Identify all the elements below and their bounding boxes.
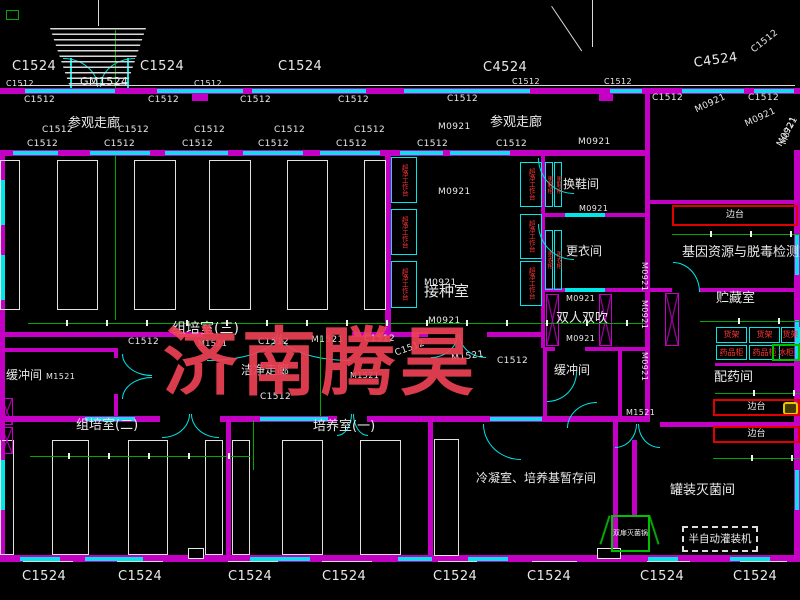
wall-segment — [0, 348, 118, 352]
window-segment — [795, 470, 799, 510]
door-swing-arc — [638, 424, 660, 448]
equipment-label: 更衣柜 — [555, 251, 561, 269]
door-window-code: C1512 — [750, 29, 780, 55]
equipment-red-bench: 边台 — [713, 426, 800, 443]
window-segment — [165, 151, 228, 155]
door-window-code: C1524 — [118, 570, 162, 583]
door-window-code: C1524 — [12, 60, 56, 73]
equipment-label: 更鞋柜 — [555, 176, 561, 194]
door-window-code: M0921 — [424, 279, 457, 288]
room-label: 贮藏室 — [716, 292, 755, 305]
door-swing-arc — [162, 414, 190, 438]
window-segment — [610, 89, 642, 93]
door-window-code: C1512 — [258, 140, 289, 149]
equipment-label: 冰柜 — [778, 349, 794, 357]
door-swing-arc — [567, 402, 597, 428]
construction-line — [228, 561, 278, 562]
window-segment — [252, 89, 366, 93]
wall-segment — [715, 363, 800, 366]
room-label: 双人双吹 — [556, 312, 608, 325]
door-window-code: C1512 — [496, 140, 527, 149]
culture-rack — [360, 440, 401, 555]
door-window-code: C1512 — [497, 357, 528, 366]
equipment-wardrobe: 更衣柜 — [554, 230, 562, 290]
window-segment — [565, 288, 605, 292]
equipment-label: 超净工作台 — [528, 220, 535, 253]
door-window-code: C1524 — [433, 570, 477, 583]
dimension-line-vertical — [253, 420, 254, 470]
door-window-code: M0921 — [566, 335, 595, 343]
dimension-line — [700, 318, 800, 324]
construction-line — [592, 0, 593, 47]
wall-segment — [487, 332, 543, 337]
equipment-label: 超净工作台 — [528, 267, 535, 300]
wall-segment — [226, 422, 231, 555]
culture-rack — [364, 160, 386, 310]
equipment-clean-bench: 超净工作台 — [391, 209, 417, 255]
culture-rack — [0, 160, 20, 310]
room-label: 缓冲间 — [6, 369, 42, 381]
wall-segment — [650, 288, 672, 292]
door-window-code: C1512 — [194, 126, 225, 135]
air-shower-hatch — [1, 398, 13, 425]
door-window-code: C1512 — [148, 96, 179, 105]
equipment-wardrobe: 更衣柜 — [545, 230, 553, 290]
air-shower-hatch — [1, 427, 13, 454]
door-window-code: C1524 — [527, 570, 571, 583]
air-shower-hatch — [665, 293, 679, 346]
dimension-line — [30, 453, 250, 459]
equipment-filler: 半自动灌装机 — [682, 526, 758, 552]
window-segment — [404, 89, 530, 93]
equipment-label: 货架 — [783, 331, 799, 339]
equipment-label: 超净工作台 — [401, 164, 408, 197]
construction-line — [438, 561, 477, 562]
door-window-code: C1512 — [417, 140, 448, 149]
corner-marker — [6, 10, 19, 20]
equipment-label: 边台 — [726, 211, 744, 220]
door-window-code: C1524 — [228, 570, 272, 583]
sterilizer-funnel-line — [648, 515, 659, 544]
window-segment — [13, 151, 58, 155]
room-label: 配药间 — [714, 371, 753, 384]
culture-rack — [287, 160, 328, 310]
room-label: 缓冲间 — [554, 364, 590, 376]
room-label: 基因资源与脱毒检测室 — [682, 246, 800, 259]
equipment-label: 更鞋柜 — [546, 176, 552, 194]
equipment-shelf: 货架 — [716, 327, 747, 343]
equipment-label: 超净工作台 — [528, 168, 535, 201]
equipment-label: 货架 — [757, 331, 773, 339]
door-threshold — [188, 548, 204, 559]
room-label: 冷凝室、培养基暂存间 — [476, 472, 596, 484]
door-window-code: C1512 — [604, 78, 632, 86]
wall-segment — [114, 394, 118, 416]
culture-rack — [134, 160, 176, 310]
door-window-code: C1524 — [22, 570, 66, 583]
door-window-code: C1512 — [240, 96, 271, 105]
equipment-label: 边台 — [747, 403, 765, 412]
culture-rack — [282, 440, 323, 555]
door-window-code: M0921 — [566, 295, 595, 303]
window-segment — [157, 89, 243, 93]
construction-line — [740, 561, 787, 562]
door-window-code: M0921 — [744, 107, 777, 129]
door-swing-arc — [122, 354, 152, 376]
door-window-code: C1512 — [118, 126, 149, 135]
equipment-label: 超净工作台 — [401, 216, 408, 249]
door-window-code: C1524 — [322, 570, 366, 583]
wall-segment — [618, 351, 622, 416]
door-window-code: C1512 — [512, 78, 540, 86]
equipment-red-bench: 边台 — [713, 399, 800, 416]
window-segment — [90, 151, 150, 155]
room-label: 换鞋间 — [563, 178, 599, 190]
construction-line — [532, 561, 577, 562]
equipment-label: 更衣柜 — [546, 251, 552, 269]
door-window-code: C1512 — [274, 126, 305, 135]
door-window-code: M0921 — [640, 352, 648, 381]
door-window-code: M1521 — [626, 409, 655, 417]
dimension-line — [672, 231, 800, 237]
door-window-code: M0921 — [438, 123, 471, 132]
window-segment — [320, 151, 380, 155]
wall-segment — [650, 200, 800, 204]
equipment-clean-bench: 超净工作台 — [520, 214, 542, 259]
door-window-code: C1524 — [140, 60, 184, 73]
door-window-code: C1512 — [128, 338, 159, 347]
door-window-code: C1524 — [733, 570, 777, 583]
leader-line — [551, 6, 582, 51]
door-window-code: C1512 — [194, 80, 222, 88]
dimension-line-vertical — [115, 155, 116, 320]
floor-plan-canvas: 济南腾昊 参观走廊参观走廊换鞋间更衣间接种室双人双吹缓冲间缓冲间组培室(三)洁净… — [0, 0, 800, 600]
equipment-clean-bench: 超净工作台 — [520, 261, 542, 306]
door-window-code: C4524 — [693, 51, 739, 70]
door-window-code: C1524 — [278, 60, 322, 73]
equipment-label: 药品柜 — [720, 349, 744, 357]
equipment-sterilizer: 双扉灭菌锅 — [611, 515, 650, 552]
equipment-clean-bench: 超净工作台 — [391, 261, 417, 308]
door-window-code: C1512 — [182, 140, 213, 149]
door-window-code: C1512 — [748, 94, 779, 103]
room-label: 参观走廊 — [68, 117, 120, 130]
door-window-code: C1512 — [447, 95, 478, 104]
door-window-code: C1512 — [354, 126, 385, 135]
culture-rack — [0, 440, 14, 555]
culture-rack — [434, 439, 459, 556]
equipment-label: 半自动灌装机 — [689, 534, 752, 545]
equipment-clean-bench: 超净工作台 — [520, 162, 542, 207]
door-window-code: C1512 — [24, 96, 55, 105]
door-window-code: C1512 — [6, 80, 34, 88]
room-label: 罐装灭菌间 — [670, 484, 735, 497]
equipment-fridge: 冰柜 — [772, 344, 800, 361]
equipment-clean-bench: 超净工作台 — [391, 157, 417, 203]
window-segment — [243, 151, 303, 155]
door-window-code: M0921 — [578, 138, 611, 147]
construction-line — [23, 561, 73, 562]
construction-line — [117, 561, 163, 562]
dimension-line — [715, 390, 800, 396]
construction-line — [20, 85, 795, 86]
wall-segment — [114, 348, 118, 358]
door-swing-arc — [122, 377, 152, 399]
equipment-label: 边台 — [747, 430, 765, 439]
window-segment — [490, 417, 542, 421]
wall-segment — [428, 422, 433, 555]
culture-rack — [57, 160, 98, 310]
door-window-code: C1512 — [338, 96, 369, 105]
construction-line — [322, 561, 372, 562]
window-segment — [450, 151, 510, 155]
equipment-shelf: 药品柜 — [716, 345, 747, 360]
room-label: 参观走廊 — [490, 116, 542, 129]
door-window-code: M0721 — [780, 115, 798, 145]
door-swing-arc — [673, 262, 700, 292]
equipment-shelf: 货架 — [749, 327, 780, 343]
door-window-code: C1512 — [104, 140, 135, 149]
equipment-shelf: 货架 — [781, 327, 800, 343]
equipment-label: 双扉灭菌锅 — [613, 530, 648, 537]
equipment-wardrobe: 更鞋柜 — [545, 162, 553, 207]
door-swing-arc — [191, 414, 219, 438]
room-label: 培养室(一) — [313, 420, 375, 433]
window-segment — [25, 89, 115, 93]
equipment-red-bench: 边台 — [672, 205, 798, 226]
door-window-code: M0921 — [579, 205, 608, 213]
culture-rack — [209, 160, 251, 310]
door-window-code: M0921 — [694, 93, 727, 115]
sterilizer-funnel-line — [599, 515, 610, 544]
window-segment — [398, 557, 432, 561]
construction-line — [647, 561, 690, 562]
door-window-code: C1512 — [42, 126, 73, 135]
door-window-code: GM1524 — [80, 76, 128, 87]
equipment-label: 超净工作台 — [401, 268, 408, 301]
room-label: 更衣间 — [566, 245, 602, 257]
door-window-code: M1521 — [46, 373, 75, 381]
door-window-code: C4524 — [483, 61, 527, 74]
wall-segment — [632, 440, 637, 516]
door-window-code: C1524 — [640, 570, 684, 583]
door-window-code: M0921 — [640, 262, 648, 291]
equipment-wardrobe: 更鞋柜 — [554, 162, 562, 207]
door-window-code: C1512 — [336, 140, 367, 149]
door-window-code: M0921 — [640, 300, 648, 329]
dimension-line — [713, 455, 800, 461]
construction-line — [98, 0, 99, 26]
wall-segment — [585, 347, 645, 351]
room-label: 组培室(二) — [76, 419, 138, 432]
watermark-text: 济南腾昊 — [163, 326, 479, 400]
window-segment — [565, 213, 605, 217]
door-window-code: C1512 — [652, 94, 683, 103]
equipment-label: 货架 — [724, 331, 740, 339]
door-swing-arc — [483, 424, 521, 460]
door-window-code: M0921 — [438, 188, 471, 197]
window-segment — [682, 89, 744, 93]
door-window-code: C1512 — [27, 140, 58, 149]
window-segment — [400, 151, 443, 155]
